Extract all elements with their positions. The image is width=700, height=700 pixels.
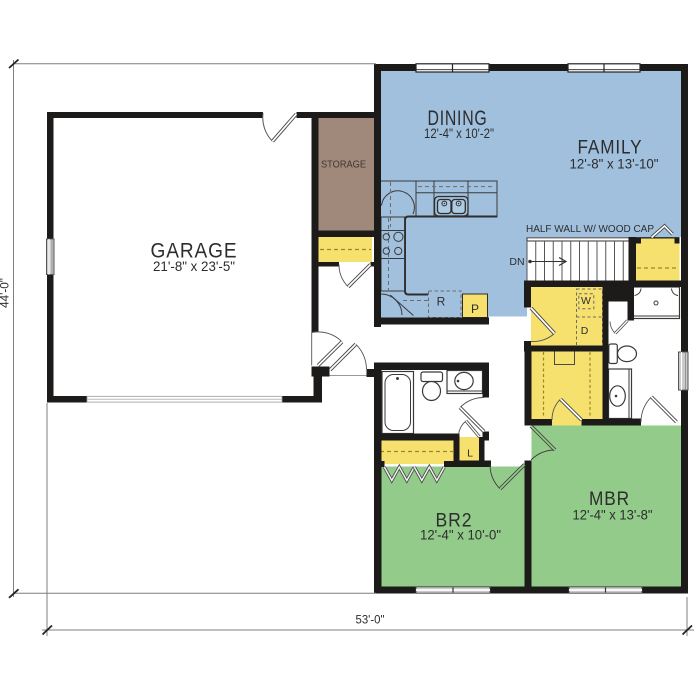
svg-text:W: W	[581, 295, 591, 307]
svg-text:44'-0": 44'-0"	[0, 278, 12, 308]
svg-text:12'-4" x 10'-2": 12'-4" x 10'-2"	[424, 126, 494, 141]
svg-text:12'-8" x 13'-10": 12'-8" x 13'-10"	[570, 156, 659, 171]
svg-text:R: R	[437, 295, 446, 309]
svg-text:12'-4" x 10'-0": 12'-4" x 10'-0"	[420, 527, 501, 542]
svg-text:D: D	[581, 325, 589, 337]
svg-text:12'-4" x 13'-8": 12'-4" x 13'-8"	[573, 508, 653, 523]
svg-text:L: L	[467, 448, 473, 460]
svg-text:STORAGE: STORAGE	[321, 159, 366, 171]
svg-text:DN: DN	[509, 256, 524, 268]
svg-text:53'-0": 53'-0"	[356, 613, 385, 627]
svg-text:HALF WALL W/ WOOD CAP: HALF WALL W/ WOOD CAP	[526, 224, 654, 235]
svg-text:FAMILY: FAMILY	[578, 137, 643, 159]
svg-text:21'-8" x 23'-5": 21'-8" x 23'-5"	[153, 259, 235, 274]
svg-text:P: P	[471, 302, 479, 316]
